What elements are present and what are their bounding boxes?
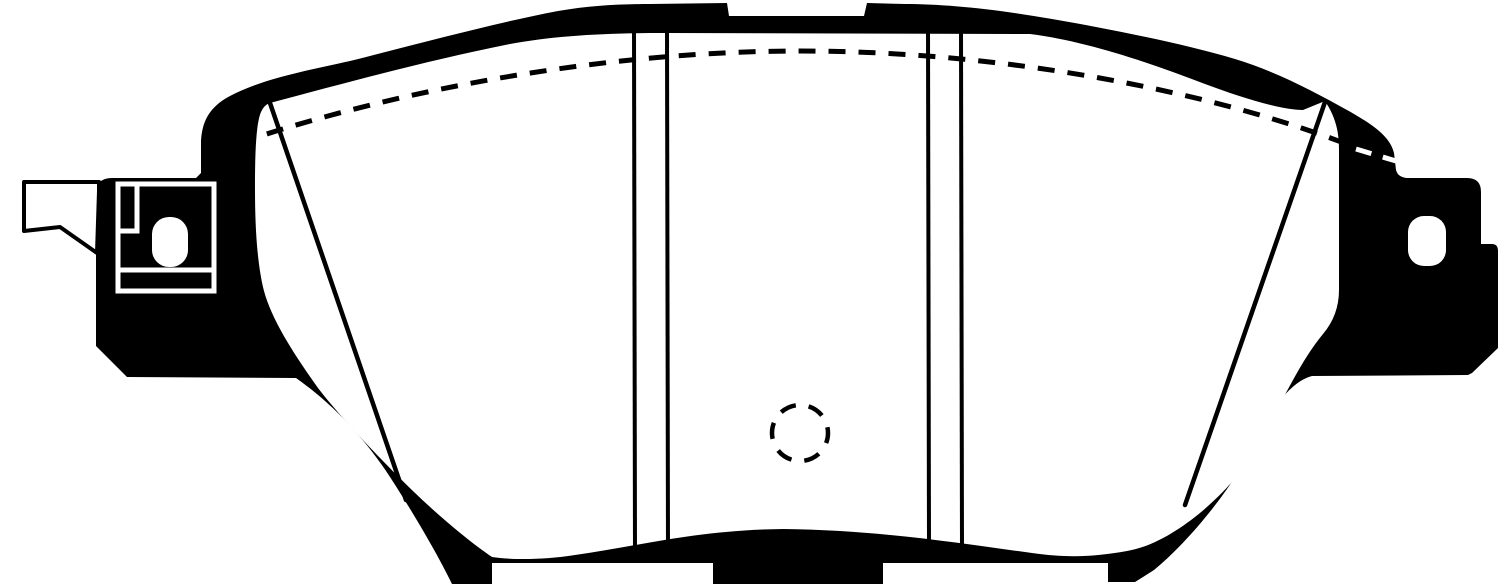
brake-pad-line-art <box>0 0 1500 584</box>
left-slot-line-2 <box>667 30 668 558</box>
left-slot-line-1 <box>634 30 635 558</box>
brake-pad-product-image <box>0 0 1500 584</box>
right-slot-line-1 <box>928 30 929 550</box>
right-lug-hole <box>1408 216 1446 266</box>
right-slot-line-2 <box>961 30 962 553</box>
wear-sensor-tab <box>24 182 99 253</box>
friction-face <box>255 33 1339 559</box>
clip-slot-hole <box>152 217 188 267</box>
